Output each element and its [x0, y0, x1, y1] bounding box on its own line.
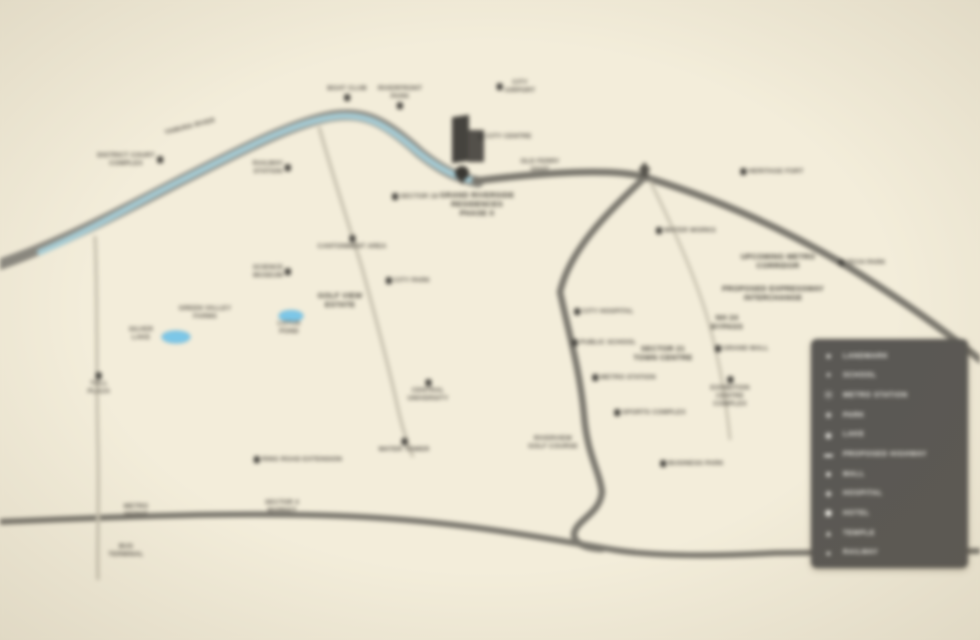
legend-item-label: LAKE — [843, 431, 864, 438]
place-name-text: RAILWAY STATION — [253, 160, 283, 176]
building-tower — [452, 115, 469, 163]
place-name-text: LOTUS POND — [277, 320, 300, 336]
map-place-label: DISTRICT COURT COMPLEX — [97, 152, 163, 168]
place-marker-icon — [157, 157, 163, 164]
place-name-text: GOLF VIEW ESTATE — [318, 291, 363, 309]
place-marker-icon — [254, 456, 260, 463]
legend-item-icon: Ⓜ — [823, 391, 834, 400]
place-name-text: TECH PARK — [846, 259, 885, 267]
map-place-label: CITY PARK — [386, 277, 430, 285]
map-place-label: SECTOR 4 MARKET — [265, 499, 299, 515]
place-marker-icon — [349, 235, 355, 242]
map-place-label: GOLF VIEW ESTATE — [318, 291, 363, 309]
legend-item-label: RAILWAY — [843, 549, 878, 556]
map-place-label: RAILWAY STATION — [253, 160, 291, 176]
map-place-label: RING ROAD EXTENSION — [254, 456, 342, 464]
place-name-text: RING ROAD EXTENSION — [262, 456, 342, 464]
legend-item-icon: ■ — [823, 470, 834, 479]
map-place-label: WATER WORKS — [656, 227, 716, 235]
place-name-text: GRAND MALL — [723, 345, 769, 353]
legend-item-label: PROPOSED HIGHWAY — [843, 451, 927, 458]
place-name-text: CITY PARK — [394, 277, 430, 285]
map-place-label: RIVERVIEW GOLF COURSE — [528, 435, 578, 451]
map-place-label: TECH PARK — [838, 259, 885, 267]
place-name-text: SPORTS COMPLEX — [622, 409, 685, 417]
map-place-label: CITY CENTRE — [478, 133, 531, 141]
legend-item-icon: ▬ — [823, 450, 834, 459]
place-marker-icon — [386, 277, 392, 284]
place-marker-icon — [96, 372, 102, 379]
pin-tip — [459, 177, 465, 185]
minor-road-left-vertical — [95, 236, 98, 580]
place-marker-icon — [344, 94, 350, 101]
legend-item: ⬟ HOTEL — [823, 507, 960, 521]
project-location-pin — [455, 166, 469, 185]
map-place-label: CANTONMENT AREA — [317, 235, 386, 251]
legend-item: ✦ SCHOOL — [823, 369, 960, 383]
legend-item-label: MALL — [843, 471, 865, 478]
legend-item-label: SCHOOL — [843, 372, 877, 379]
place-name-text: PROPOSED EXPRESSWAY INTERCHANGE — [722, 284, 824, 302]
place-marker-icon — [656, 227, 662, 234]
legend-item-label: HOTEL — [843, 510, 870, 517]
map-place-label: GRAND MALL — [715, 345, 769, 353]
map-place-label: HERITAGE FORT — [740, 168, 803, 176]
place-marker-icon — [592, 374, 598, 381]
place-marker-icon — [727, 376, 733, 383]
location-map: YAMUNA RIVER DISTRICT COURT COMPLEX RAIL… — [0, 0, 980, 640]
place-name-text: GRAND RIVERSIDE RESIDENCES PHASE II — [440, 191, 515, 218]
map-place-label: LOTUS POND — [277, 320, 300, 336]
place-name-text: TOLL PLAZA — [88, 380, 111, 396]
legend-item: ● RAILWAY — [823, 546, 960, 560]
map-place-label: BUS TERMINAL — [108, 543, 143, 559]
place-name-text: SECTOR 21 TOWN CENTRE — [634, 344, 693, 362]
map-legend: ★ LANDMARK ✦ SCHOOL Ⓜ METRO STATION ❀ PA… — [811, 339, 968, 568]
map-place-label: TOLL PLAZA — [88, 372, 111, 396]
place-name-text: RIVERFRONT PARK — [378, 85, 422, 101]
place-marker-icon — [838, 259, 844, 266]
place-name-text: RIVERVIEW GOLF COURSE — [528, 435, 578, 451]
map-place-label: EXHIBITION CENTRE COMPLEX — [710, 376, 749, 407]
legend-item-label: LANDMARK — [843, 353, 888, 360]
place-name-text: METRO DEPOT — [124, 503, 148, 519]
map-place-label: PROPOSED EXPRESSWAY INTERCHANGE — [722, 284, 824, 302]
lake-silver — [162, 331, 190, 343]
place-marker-icon — [285, 165, 291, 172]
legend-item: Ⓜ METRO STATION — [823, 388, 960, 402]
map-place-label: SECTOR 18 — [392, 193, 438, 201]
legend-item-icon: ▲ — [823, 529, 834, 538]
map-place-label: PUBLIC SCHOOL — [572, 339, 636, 347]
place-marker-icon — [740, 168, 746, 175]
place-marker-icon — [660, 460, 666, 467]
legend-item-icon: ✚ — [823, 490, 834, 499]
place-name-text: SECTOR 4 MARKET — [265, 499, 299, 515]
place-name-text: SECTOR 18 — [400, 193, 438, 201]
map-place-label: METRO STATION — [592, 374, 655, 382]
place-name-text: SCIENCE MUSEUM — [253, 264, 283, 280]
legend-item: ◉ LAKE — [823, 428, 960, 442]
place-marker-icon — [392, 193, 398, 200]
place-name-text: BUSINESS PARK — [668, 460, 724, 468]
map-place-label: SPORTS COMPLEX — [614, 409, 685, 417]
main-highway — [475, 172, 980, 364]
map-place-label: UPCOMING METRO CORRIDOR — [741, 252, 816, 270]
place-name-text: GREEN VALLEY FARMS — [179, 305, 231, 321]
legend-item: ▬ PROPOSED HIGHWAY — [823, 447, 960, 461]
place-name-text: OLD FERRY GHAT — [520, 158, 559, 174]
map-place-label: BOAT CLUB — [327, 85, 367, 101]
place-name-text: UPCOMING METRO CORRIDOR — [741, 252, 816, 270]
legend-item-icon: ⬟ — [823, 509, 834, 518]
place-name-text: PUBLIC SCHOOL — [580, 339, 636, 347]
map-place-label: CITY HOSPITAL — [574, 308, 633, 316]
place-marker-icon — [401, 438, 407, 445]
map-place-label: OLD FERRY GHAT — [520, 158, 559, 174]
map-place-label: RIVERFRONT PARK — [378, 85, 422, 109]
legend-item-icon: ◉ — [823, 431, 834, 440]
legend-item-icon: ★ — [823, 352, 834, 361]
legend-item-icon: ✦ — [823, 371, 834, 380]
place-marker-icon — [715, 345, 721, 352]
place-marker-icon — [574, 308, 580, 315]
map-place-label: CENTRAL UNIVERSITY — [407, 379, 448, 403]
place-name-text: METRO STATION — [600, 374, 655, 382]
place-name-text: CITY CENTRE — [486, 133, 531, 141]
place-name-text: WATER WORKS — [664, 227, 716, 235]
place-name-text: EXHIBITION CENTRE COMPLEX — [710, 384, 749, 407]
place-name-text: SILVER LAKE — [129, 326, 153, 342]
place-marker-icon — [572, 339, 578, 346]
legend-item-icon: ● — [823, 549, 834, 558]
legend-item: ■ MALL — [823, 467, 960, 481]
place-name-text: DISTRICT COURT COMPLEX — [97, 152, 155, 168]
place-name-text: NH 24 BYPASS — [711, 313, 743, 331]
legend-item-label: METRO STATION — [843, 392, 908, 399]
legend-item-label: PARK — [843, 412, 865, 419]
map-place-label: METRO DEPOT — [124, 503, 148, 519]
place-marker-icon — [425, 379, 431, 386]
map-place-label: BUSINESS PARK — [660, 460, 724, 468]
map-place-label: NH 24 BYPASS — [711, 313, 743, 331]
legend-item: ▲ TEMPLE — [823, 526, 960, 540]
legend-item: ❀ PARK — [823, 408, 960, 422]
place-marker-icon — [285, 269, 291, 276]
river-casing — [0, 115, 478, 266]
map-place-label: GREEN VALLEY FARMS — [179, 305, 231, 321]
map-place-label: SECTOR 21 TOWN CENTRE — [634, 344, 693, 362]
place-name-text: WATER TOWER — [378, 446, 429, 454]
map-place-label: WATER TOWER — [378, 438, 429, 454]
place-name-text: CENTRAL UNIVERSITY — [407, 387, 448, 403]
place-marker-icon — [478, 133, 484, 140]
legend-item-label: TEMPLE — [843, 530, 875, 537]
legend-item-icon: ❀ — [823, 411, 834, 420]
map-place-label: SCIENCE MUSEUM — [253, 264, 291, 280]
map-place-label: GRAND RIVERSIDE RESIDENCES PHASE II — [440, 191, 515, 218]
place-name-text: CITY HOSPITAL — [582, 308, 633, 316]
place-name-text: BOAT CLUB — [327, 85, 367, 93]
place-name-text: HERITAGE FORT — [748, 168, 803, 176]
map-place-label: CITY AIRPORT — [497, 79, 536, 95]
place-name-text: CANTONMENT AREA — [317, 243, 386, 251]
legend-item: ★ LANDMARK — [823, 349, 960, 363]
place-marker-icon — [614, 409, 620, 416]
place-name-text: CITY AIRPORT — [505, 79, 536, 95]
legend-item: ✚ HOSPITAL — [823, 487, 960, 501]
legend-item-label: HOSPITAL — [843, 490, 883, 497]
secondary-road — [560, 179, 643, 549]
place-marker-icon — [397, 102, 403, 109]
place-marker-icon — [497, 84, 503, 91]
map-place-label: SILVER LAKE — [129, 326, 153, 342]
place-name-text: BUS TERMINAL — [108, 543, 143, 559]
